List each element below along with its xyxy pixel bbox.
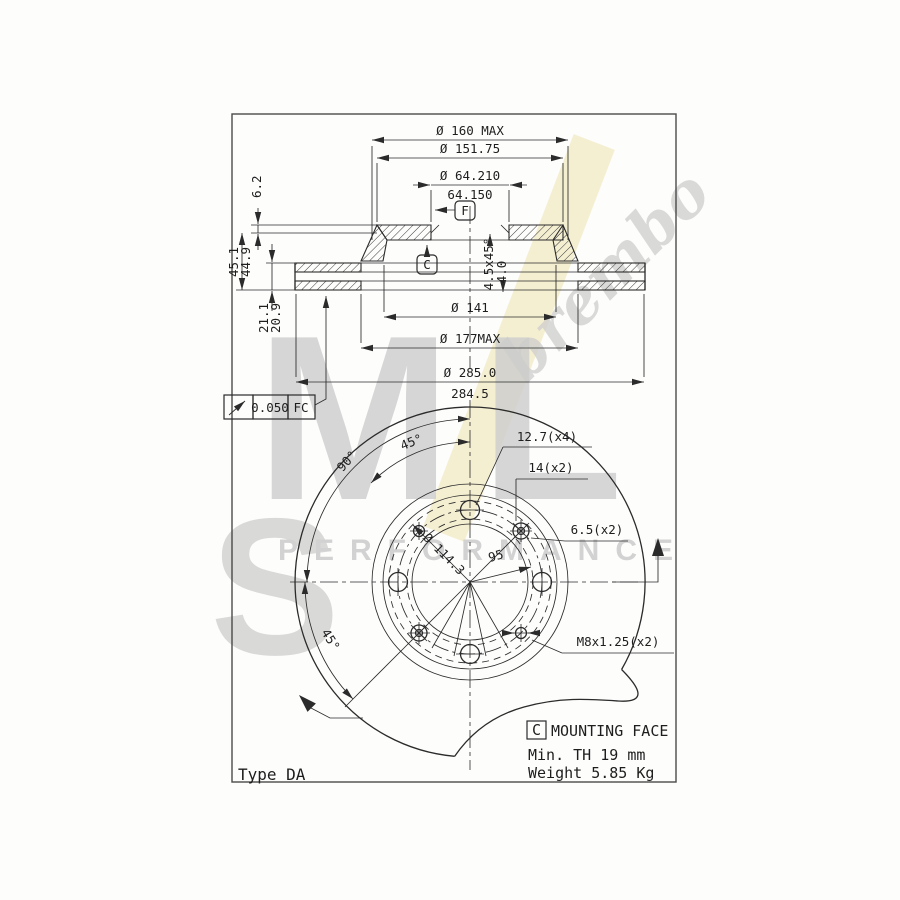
weight-label: Weight 5.85 Kg xyxy=(528,764,654,782)
datum-c: C xyxy=(417,245,437,274)
dim-141-label: Ø 141 xyxy=(451,300,489,315)
hat-section xyxy=(361,225,578,261)
break-line xyxy=(455,670,638,757)
dim-211: 21.1 20.9 xyxy=(256,244,295,333)
tol-datum-label: FC xyxy=(293,400,308,415)
drawing-sheet: ML brembo S PERFORMANCE xyxy=(0,0,900,900)
dim-95: 95 xyxy=(470,546,531,582)
dim-451: 45.1 44.9 xyxy=(226,233,295,290)
bolt-circle-label: Ø 114.3 xyxy=(420,530,468,578)
dim-64-lo-label: 64.150 xyxy=(447,187,492,202)
angle-90-label: 90° xyxy=(334,448,360,475)
dim-bolt-circle: Ø 114.3 xyxy=(413,525,470,582)
label-m8: M8x1.25(x2) xyxy=(532,634,674,653)
tol-value-label: 0.050 xyxy=(251,400,289,415)
datum-f-label: F xyxy=(461,203,469,218)
dim-449-label: 44.9 xyxy=(238,247,253,277)
plan-view: Ø 114.3 95 45° 90° xyxy=(290,407,674,756)
holes-127-label: 12.7(x4) xyxy=(517,429,577,444)
note-datum-c: C xyxy=(532,721,541,739)
notes-block: C MOUNTING FACE Min. TH 19 mm Weight 5.8… xyxy=(527,721,668,782)
dim-chamfer: 4.5x45° 4.0 xyxy=(481,234,509,292)
datum-c-label: C xyxy=(423,257,431,272)
dim-285-hi-label: Ø 285.0 xyxy=(444,365,497,380)
dim-160-label: Ø 160 MAX xyxy=(436,123,504,138)
dim-15175-label: Ø 151.75 xyxy=(440,141,500,156)
type-label: Type DA xyxy=(238,765,306,784)
technical-drawing-svg: Ø 160 MAX Ø 151.75 Ø 64.210 64.150 F xyxy=(0,0,900,900)
thread-label: M8x1.25(x2) xyxy=(577,634,660,649)
holes-14-label: 14(x2) xyxy=(528,460,573,475)
rotation-arrow-right xyxy=(612,538,664,582)
angle-45-bottom-label: 45° xyxy=(318,626,343,653)
dim-62: 6.2 xyxy=(249,175,377,250)
label-14: 14(x2) xyxy=(516,460,588,521)
dim-285-lo-label: 284.5 xyxy=(451,386,489,401)
dim-177-label: Ø 177MAX xyxy=(440,331,501,346)
sheet-border xyxy=(232,114,676,782)
depth-label: 4.0 xyxy=(494,261,509,284)
min-thickness-label: Min. TH 19 mm xyxy=(528,746,645,764)
dim-209-label: 20.9 xyxy=(268,303,283,333)
dim-62-label: 6.2 xyxy=(249,175,264,198)
holes-65-label: 6.5(x2) xyxy=(571,522,624,537)
datum-f: F xyxy=(435,201,475,220)
mounting-face-label: MOUNTING FACE xyxy=(551,722,668,740)
dim-64-hi-label: Ø 64.210 xyxy=(440,168,500,183)
